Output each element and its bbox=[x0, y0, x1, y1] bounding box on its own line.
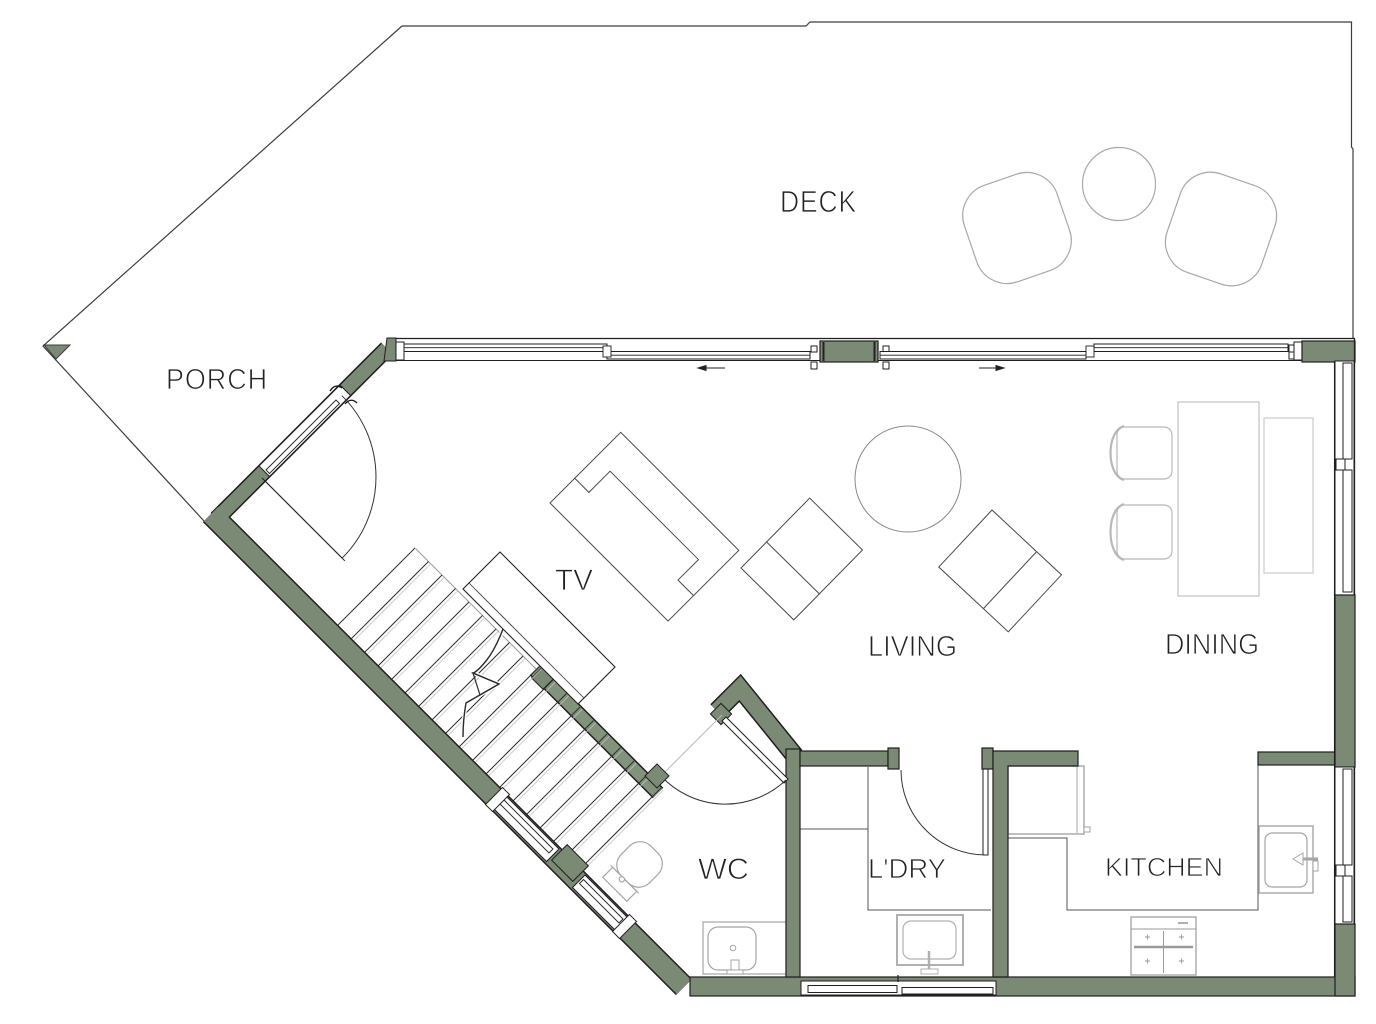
svg-text:WC: WC bbox=[698, 853, 749, 886]
svg-text:DINING: DINING bbox=[1165, 629, 1259, 661]
svg-text:TV: TV bbox=[555, 564, 593, 597]
svg-text:L'DRY: L'DRY bbox=[868, 853, 946, 884]
svg-text:DECK: DECK bbox=[780, 184, 857, 219]
svg-text:KITCHEN: KITCHEN bbox=[1105, 852, 1223, 882]
svg-text:LIVING: LIVING bbox=[868, 631, 957, 663]
svg-text:PORCH: PORCH bbox=[166, 364, 268, 396]
